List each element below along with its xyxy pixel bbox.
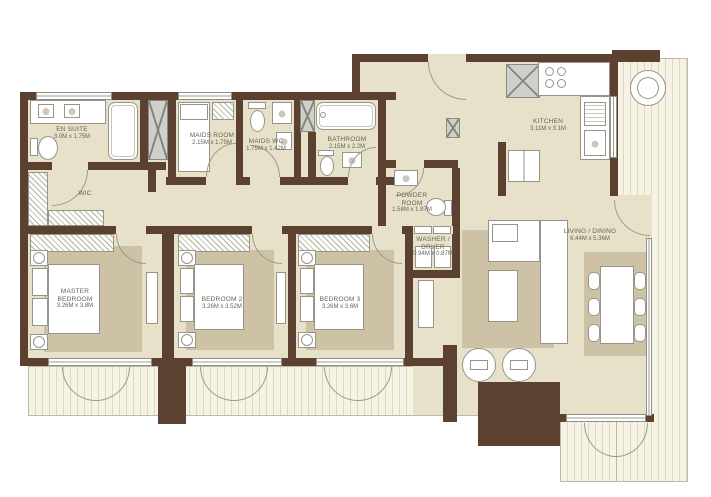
window <box>48 358 152 366</box>
wall <box>612 50 660 62</box>
fridge-icon <box>508 150 540 182</box>
wall <box>162 226 174 358</box>
wall-block <box>478 382 560 446</box>
room-name: BEDROOM 3 <box>308 296 372 304</box>
door-opening <box>252 226 282 234</box>
room-label-bathroom: BATHROOM 2.15M x 2.2M <box>318 136 376 151</box>
lounge-chair-cushion <box>510 360 528 370</box>
wall <box>148 162 156 192</box>
door-opening <box>116 226 146 234</box>
lamp-icon <box>181 252 193 264</box>
toilet-icon <box>250 110 265 132</box>
room-dims: 3.0M x 1.75M <box>38 134 106 141</box>
room-dims: 6.44M x 5.36M <box>552 236 628 243</box>
room-dims: 1.75M x 1.42M <box>240 146 292 153</box>
dining-chair <box>588 272 600 290</box>
room-label-maids-room: MAIDS ROOM 2.15M x 1.75M <box>180 132 244 147</box>
floor-plan: EN SUITE 3.0M x 1.75M WIC MAIDS ROOM 2.1… <box>0 0 711 497</box>
window <box>192 358 282 366</box>
sofa-cushion <box>492 224 518 242</box>
wall <box>288 226 296 358</box>
dresser <box>276 272 286 324</box>
room-label-washer-dryer: WASHER / DRYER 0.94M x 0.87M <box>412 236 454 258</box>
wic-shelving <box>48 210 104 226</box>
wall <box>452 168 460 278</box>
balcony-chair-cushion <box>637 77 659 99</box>
dining-chair <box>634 272 646 290</box>
toilet-tank <box>248 102 266 109</box>
sink-icon <box>64 104 80 118</box>
room-label-wic: WIC <box>60 190 110 198</box>
door-opening <box>52 162 88 170</box>
shower-icon <box>272 102 292 124</box>
wall-pillar <box>158 362 186 424</box>
lounge-chair-cushion <box>470 360 488 370</box>
pillow <box>180 268 194 294</box>
window <box>36 92 112 100</box>
entry-door-opening <box>428 54 466 62</box>
wic-shelving <box>28 172 48 226</box>
room-dims: 3.26M x 3.6M <box>308 304 372 311</box>
room-name: MAIDS WC <box>240 138 292 146</box>
room-name: WASHER / DRYER <box>412 236 454 251</box>
room-dims: 0.94M x 0.87M <box>412 251 454 258</box>
lamp-icon <box>33 336 45 348</box>
window <box>566 414 646 422</box>
service-shaft <box>446 118 460 138</box>
balcony-sliding-door <box>610 96 617 158</box>
room-name: WIC <box>60 190 110 198</box>
service-shaft <box>506 64 540 98</box>
room-dims: 2.15M x 2.2M <box>318 144 376 151</box>
lamp-icon <box>33 252 45 264</box>
room-name: BATHROOM <box>318 136 376 144</box>
coffee-table <box>488 270 518 322</box>
sink-icon <box>38 104 54 118</box>
room-name: BEDROOM 2 <box>190 296 254 304</box>
wall <box>140 92 148 170</box>
room-name: KITCHEN <box>516 118 580 126</box>
room-name: LIVING / DINING <box>552 228 628 236</box>
door-opening <box>348 177 376 185</box>
wardrobe <box>212 102 234 120</box>
window-wall <box>646 238 652 416</box>
door-opening <box>250 177 280 185</box>
room-name: POWDER ROOM <box>390 192 434 207</box>
room-label-bedroom-3: BEDROOM 3 3.26M x 3.6M <box>308 296 372 311</box>
lamp-icon <box>301 334 313 346</box>
stove-burner <box>545 67 554 76</box>
wall <box>168 92 176 185</box>
wall-jog <box>443 345 457 422</box>
wall <box>352 54 624 62</box>
dining-table <box>600 266 634 344</box>
room-name: MAIDS ROOM <box>180 132 244 140</box>
room-dims: 1.58M x 1.97M <box>390 207 434 214</box>
dresser <box>146 272 158 324</box>
room-label-kitchen: KITCHEN 3.11M x 3.1M <box>516 118 580 133</box>
service-shaft <box>148 100 168 160</box>
stove-burner <box>557 79 566 88</box>
bathtub-icon <box>108 102 138 160</box>
dining-chair <box>634 324 646 342</box>
bifold-door <box>414 226 432 234</box>
room-label-living-dining: LIVING / DINING 6.44M x 5.36M <box>552 228 628 243</box>
toilet-icon <box>320 156 334 176</box>
drying-rack <box>584 102 606 126</box>
lamp-icon <box>301 252 313 264</box>
faucet-icon <box>320 112 326 118</box>
room-dims: 3.26M x 3.52M <box>190 304 254 311</box>
wall <box>378 92 386 226</box>
dining-chair <box>634 298 646 316</box>
room-label-powder-room: POWDER ROOM 1.58M x 1.97M <box>390 192 434 214</box>
door-opening <box>372 226 402 234</box>
bifold-door <box>433 226 451 234</box>
window <box>178 92 232 100</box>
pillow <box>300 268 314 294</box>
room-dims: 3.26M x 3.8M <box>44 303 106 310</box>
room-name: MASTER BEDROOM <box>44 288 106 303</box>
door-opening <box>396 160 424 168</box>
door-opening <box>206 177 236 185</box>
room-dims: 2.15M x 1.75M <box>180 140 244 147</box>
kitchen-sink-icon <box>584 130 606 156</box>
dining-chair <box>588 298 600 316</box>
room-dims: 3.11M x 3.1M <box>516 126 580 133</box>
room-label-bedroom-2: BEDROOM 2 3.26M x 3.52M <box>190 296 254 311</box>
room-label-maids-wc: MAIDS WC 1.75M x 1.42M <box>240 138 292 153</box>
window <box>316 358 404 366</box>
stove-burner <box>545 79 554 88</box>
wall <box>20 92 28 366</box>
room-label-en-suite: EN SUITE 3.0M x 1.75M <box>38 126 106 141</box>
wall <box>308 132 316 185</box>
service-shaft <box>300 100 315 132</box>
wall <box>498 142 506 196</box>
stove-burner <box>557 67 566 76</box>
tv-console <box>418 280 434 328</box>
pillow <box>180 104 208 120</box>
dining-chair <box>588 324 600 342</box>
wall <box>352 54 360 100</box>
toilet-tank <box>30 138 38 156</box>
room-name: EN SUITE <box>38 126 106 134</box>
lamp-icon <box>181 334 193 346</box>
room-label-master-bedroom: MASTER BEDROOM 3.26M x 3.8M <box>44 288 106 310</box>
